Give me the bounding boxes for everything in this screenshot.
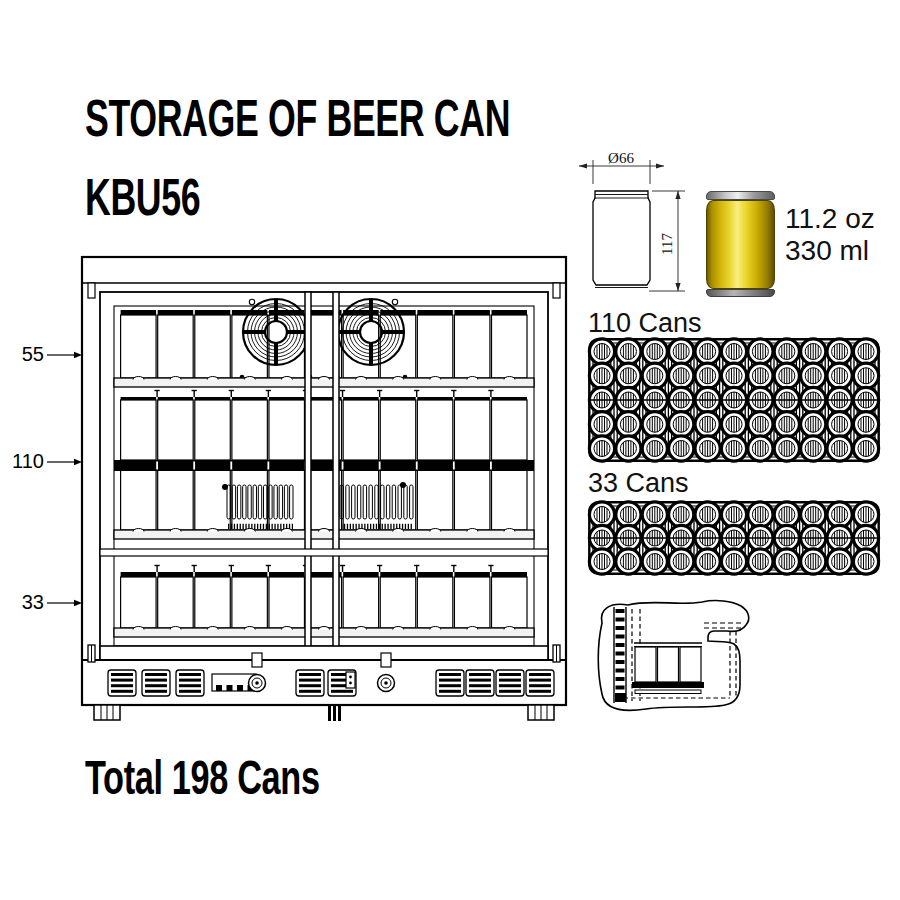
shelf-capacity-label: 55 (22, 343, 44, 365)
can-dimension-drawing: Ø66 117 (575, 148, 710, 313)
can-volume-oz: 11.2 oz (785, 203, 875, 235)
can-outline (593, 191, 650, 288)
fridge-front-diagram: 55 110 33 (10, 255, 570, 725)
shelf-capacity-label: 110 (12, 450, 44, 472)
fridge-cabinet (82, 257, 566, 705)
beer-can-image (706, 191, 775, 297)
interior-detail-drawing (592, 597, 832, 722)
shelves (114, 377, 534, 638)
fans-and-evaporator (222, 299, 413, 537)
page-title: STORAGE OF BEER CAN (85, 93, 510, 144)
shelf-capacity-labels: 55 110 33 (12, 343, 82, 613)
storage-diagram-page: STORAGE OF BEER CAN KBU56 Total 198 Cans… (0, 0, 900, 900)
can-tray-top-view-110 (588, 338, 880, 462)
can-body (706, 200, 775, 289)
shelf-capacity-label: 33 (22, 591, 44, 613)
can-top-rim (706, 191, 775, 200)
door-frame-overlays (82, 292, 566, 660)
dimension-arrow (74, 352, 82, 358)
can-diameter-label: Ø66 (608, 150, 634, 166)
can-bottom-rim (706, 289, 775, 297)
dimension-arrow (74, 459, 82, 465)
tray-capacity-label: 110 Cans (588, 308, 702, 339)
can-height-label: 117 (659, 233, 675, 255)
can-volume-ml: 330 ml (785, 235, 875, 267)
total-capacity: Total 198 Cans (85, 753, 320, 802)
model-number: KBU56 (85, 172, 200, 223)
dimension-arrow (74, 600, 82, 606)
tray-capacity-label: 33 Cans (588, 468, 689, 499)
can-tray-top-view-33 (588, 501, 880, 575)
can-volume: 11.2 oz 330 ml (785, 203, 875, 267)
